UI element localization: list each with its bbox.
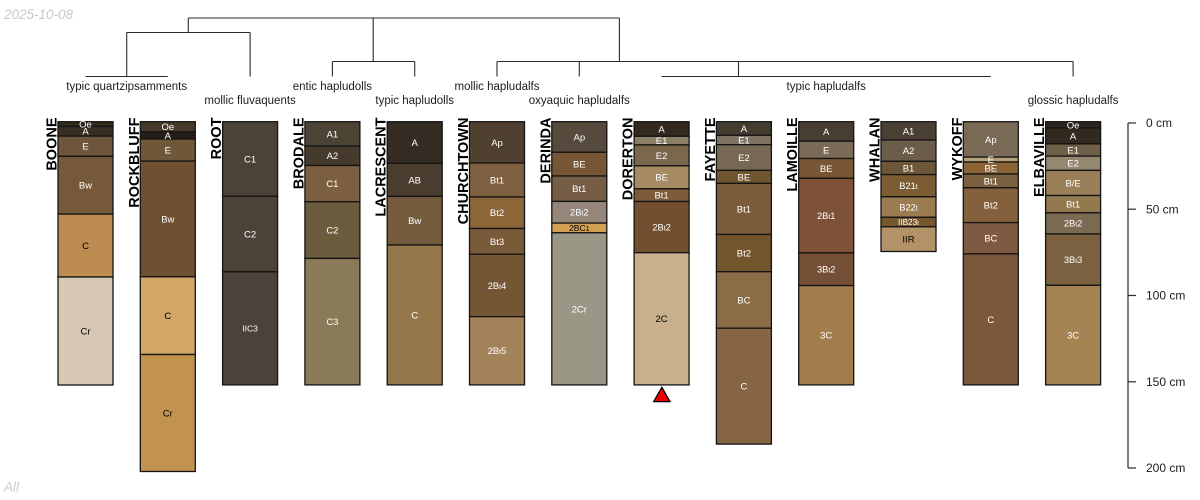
svg-text:C3: C3 — [326, 317, 338, 328]
svg-text:BC: BC — [737, 295, 750, 306]
svg-text:BE: BE — [738, 172, 751, 183]
svg-text:BE: BE — [573, 160, 586, 171]
svg-text:E: E — [823, 145, 829, 156]
svg-text:E2: E2 — [1067, 159, 1079, 170]
svg-text:IIC3: IIC3 — [242, 323, 258, 333]
svg-text:Bt3: Bt3 — [490, 237, 504, 248]
svg-text:C: C — [164, 311, 171, 322]
svg-text:Bt1: Bt1 — [984, 176, 998, 187]
svg-text:Bw: Bw — [161, 214, 174, 225]
svg-text:B1: B1 — [903, 163, 915, 174]
svg-text:Bt1: Bt1 — [572, 184, 586, 195]
svg-text:B22t: B22t — [899, 202, 918, 212]
svg-text:E: E — [82, 142, 88, 153]
svg-text:0 cm: 0 cm — [1146, 116, 1172, 130]
svg-text:Bw: Bw — [79, 181, 92, 192]
svg-text:E2: E2 — [656, 151, 668, 162]
svg-text:C: C — [740, 382, 747, 393]
svg-text:Cr: Cr — [163, 408, 173, 419]
svg-text:A: A — [823, 127, 830, 138]
svg-text:A2: A2 — [903, 146, 915, 157]
svg-text:Bt2: Bt2 — [490, 208, 504, 219]
svg-text:BE: BE — [820, 164, 833, 175]
svg-text:Ap: Ap — [985, 135, 997, 146]
svg-text:C1: C1 — [326, 179, 338, 190]
svg-text:2Bt2: 2Bt2 — [652, 222, 671, 232]
svg-text:B21t: B21t — [899, 181, 918, 191]
svg-text:C1: C1 — [244, 154, 256, 165]
svg-text:E1: E1 — [656, 136, 668, 147]
svg-text:A1: A1 — [903, 126, 915, 137]
svg-text:Ap: Ap — [573, 132, 585, 143]
svg-text:glossic hapludalfs: glossic hapludalfs — [1028, 95, 1119, 107]
svg-text:Ap: Ap — [491, 138, 503, 149]
svg-text:Bw: Bw — [408, 216, 421, 227]
svg-text:100 cm: 100 cm — [1146, 289, 1185, 303]
svg-text:3C: 3C — [1067, 331, 1079, 342]
svg-text:A: A — [165, 131, 172, 142]
svg-text:C: C — [411, 310, 418, 321]
svg-text:IIB23t: IIB23t — [898, 218, 919, 227]
svg-text:3Bt2: 3Bt2 — [817, 265, 836, 275]
svg-text:2Cr: 2Cr — [572, 304, 587, 315]
svg-text:2Bt1: 2Bt1 — [817, 211, 836, 221]
svg-text:A1: A1 — [327, 129, 339, 140]
svg-text:150 cm: 150 cm — [1146, 375, 1185, 389]
svg-text:2Bt4: 2Bt4 — [488, 281, 507, 291]
svg-text:mollic fluvaquents: mollic fluvaquents — [204, 95, 296, 107]
svg-text:Bt1: Bt1 — [654, 191, 668, 202]
svg-text:IIR: IIR — [902, 235, 914, 246]
svg-text:E: E — [165, 146, 171, 157]
svg-text:2Bt2: 2Bt2 — [570, 208, 589, 218]
svg-text:A: A — [741, 124, 748, 135]
svg-text:E1: E1 — [738, 135, 750, 146]
svg-text:E1: E1 — [1067, 145, 1079, 156]
svg-text:200 cm: 200 cm — [1146, 461, 1185, 475]
svg-text:AB: AB — [408, 175, 421, 186]
svg-text:BC: BC — [984, 234, 997, 245]
svg-text:E2: E2 — [738, 153, 750, 164]
svg-text:3Bt3: 3Bt3 — [1064, 255, 1083, 265]
svg-text:All: All — [3, 480, 20, 495]
svg-text:entic hapludolls: entic hapludolls — [293, 81, 373, 93]
svg-text:2Bt2: 2Bt2 — [1064, 219, 1083, 229]
svg-text:C: C — [987, 315, 994, 326]
svg-text:C2: C2 — [326, 226, 338, 237]
svg-text:typic hapludalfs: typic hapludalfs — [787, 81, 867, 93]
svg-text:Bt2: Bt2 — [984, 201, 998, 212]
svg-text:C: C — [82, 241, 89, 252]
svg-text:mollic hapludalfs: mollic hapludalfs — [454, 81, 539, 93]
svg-text:Bt1: Bt1 — [737, 204, 751, 215]
svg-text:2025-10-08: 2025-10-08 — [3, 7, 74, 22]
svg-text:BE: BE — [655, 173, 668, 184]
svg-text:A2: A2 — [327, 151, 339, 162]
svg-text:Bt2: Bt2 — [737, 249, 751, 260]
svg-text:Bt1: Bt1 — [1066, 200, 1080, 211]
svg-text:A: A — [658, 124, 665, 135]
svg-text:C2: C2 — [244, 230, 256, 241]
svg-text:A: A — [1070, 131, 1077, 142]
svg-text:Cr: Cr — [80, 326, 90, 337]
svg-text:typic hapludolls: typic hapludolls — [375, 95, 454, 107]
svg-text:A: A — [82, 127, 89, 138]
svg-text:Oe: Oe — [1067, 120, 1080, 131]
svg-text:2Bt5: 2Bt5 — [488, 346, 507, 356]
svg-text:50 cm: 50 cm — [1146, 202, 1179, 216]
svg-text:oxyaquic hapludalfs: oxyaquic hapludalfs — [529, 95, 630, 107]
svg-text:B/E: B/E — [1065, 178, 1080, 189]
svg-text:BE: BE — [984, 163, 997, 174]
svg-text:3C: 3C — [820, 331, 832, 342]
svg-text:Bt1: Bt1 — [490, 175, 504, 186]
svg-text:A: A — [412, 138, 419, 149]
svg-text:typic quartzipsamments: typic quartzipsamments — [66, 81, 187, 93]
svg-text:2C: 2C — [656, 314, 668, 325]
